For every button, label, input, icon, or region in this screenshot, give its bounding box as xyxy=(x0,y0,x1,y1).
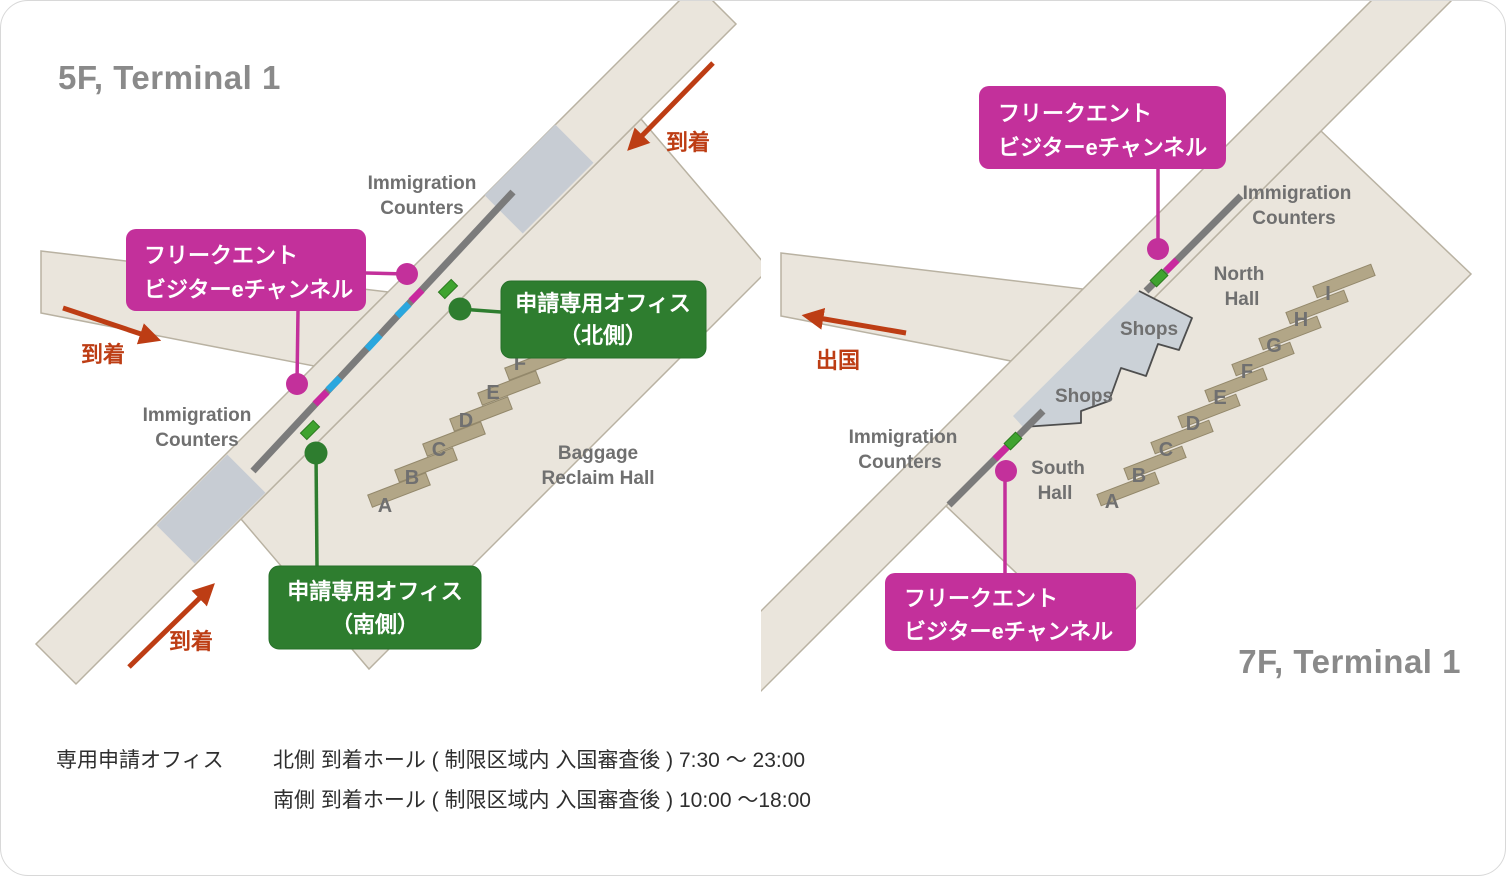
row-label: H xyxy=(1294,309,1308,331)
north-hall-label: North xyxy=(1214,264,1265,285)
office-point-south xyxy=(305,442,328,465)
shops-label-lower: Shops xyxy=(1055,386,1113,407)
shops-label-upper: Shops xyxy=(1120,319,1178,340)
map-5f: A B C D E F 到着 到着 到着 フリークエント ビジターe xyxy=(1,1,761,721)
callout-office-north: 申請専用オフィス （北側） xyxy=(501,281,706,358)
map-title-7f: 7F, Terminal 1 xyxy=(1216,643,1461,681)
callout-line: ビジターeチャンネル xyxy=(904,619,1113,644)
callout-line: （南側） xyxy=(331,612,419,637)
departure-label: 出国 xyxy=(816,348,860,373)
callout-line: フリークエント xyxy=(144,243,298,268)
baggage-reclaim-hall-label: Baggage xyxy=(558,443,638,464)
immigration-counters-label: Immigration xyxy=(368,173,477,194)
map-title-5f: 5F, Terminal 1 xyxy=(58,59,281,97)
row-label: B xyxy=(1132,465,1146,487)
row-label: A xyxy=(1105,491,1119,513)
echannel-point-north xyxy=(1147,238,1169,260)
immigration-counters-label: Counters xyxy=(1252,208,1335,229)
callout-line: フリークエント xyxy=(998,101,1152,126)
row-label: F xyxy=(1241,361,1253,383)
callout-line: 申請専用オフィス xyxy=(287,579,463,604)
callout-office-south: 申請専用オフィス （南側） xyxy=(269,566,481,649)
arrival-label-bottom: 到着 xyxy=(169,629,213,654)
callout-line: （北側） xyxy=(559,323,647,348)
echannel-point-north xyxy=(396,263,418,285)
belt-label: A xyxy=(378,495,392,517)
echannel-point-south xyxy=(286,373,308,395)
row-label: I xyxy=(1325,283,1331,305)
callout-line: ビジターeチャンネル xyxy=(998,135,1207,160)
row-label: G xyxy=(1266,335,1282,357)
row-label: D xyxy=(1186,413,1200,435)
belt-label: E xyxy=(486,382,499,404)
north-hall-label: Hall xyxy=(1225,289,1260,310)
map-7f: A B C D E F G H I 出国 フリークエント ビジターeチャンネル … xyxy=(761,1,1506,721)
immigration-counters-label: Counters xyxy=(380,198,463,219)
row-label: E xyxy=(1213,387,1226,409)
south-hall-label: South xyxy=(1031,458,1085,479)
immigration-counters-label: Counters xyxy=(858,452,941,473)
immigration-counters-label: Counters xyxy=(155,430,238,451)
immigration-counters-label: Immigration xyxy=(143,405,252,426)
office-hours-lines: 北側 到着ホール ( 制限区域内 入国審査後 ) 7:30 ～ 23:00 南側… xyxy=(273,741,811,821)
callout-line: 申請専用オフィス xyxy=(515,291,691,316)
row-label: C xyxy=(1159,439,1173,461)
office-hours-heading: 専用申請オフィス xyxy=(56,741,224,781)
terminal-map-card: A B C D E F 到着 到着 到着 フリークエント ビジターe xyxy=(0,0,1506,876)
immigration-counters-label: Immigration xyxy=(849,427,958,448)
callout-frequent-visitor-echannel-bottom: フリークエント ビジターeチャンネル xyxy=(885,573,1136,651)
baggage-reclaim-hall-label: Reclaim Hall xyxy=(542,468,655,489)
belt-label: C xyxy=(432,439,446,461)
callout-line: フリークエント xyxy=(904,586,1058,611)
callout-line: ビジターeチャンネル xyxy=(144,277,353,302)
arrival-label-top: 到着 xyxy=(666,130,710,155)
callout-frequent-visitor-echannel-top: フリークエント ビジターeチャンネル xyxy=(979,86,1226,169)
callout-connector xyxy=(316,453,317,566)
belt-label: B xyxy=(405,467,419,489)
echannel-point-south xyxy=(995,460,1017,482)
arrival-label-left: 到着 xyxy=(81,342,125,367)
immigration-counters-label: Immigration xyxy=(1243,183,1352,204)
office-point-north xyxy=(449,298,472,321)
office-hours-south: 南側 到着ホール ( 制限区域内 入国審査後 ) 10:00 ～18:00 xyxy=(273,781,811,821)
callout-frequent-visitor-echannel: フリークエント ビジターeチャンネル xyxy=(126,229,366,311)
belt-label: D xyxy=(459,410,473,432)
office-hours-north: 北側 到着ホール ( 制限区域内 入国審査後 ) 7:30 ～ 23:00 xyxy=(273,741,811,781)
south-hall-label: Hall xyxy=(1038,483,1073,504)
